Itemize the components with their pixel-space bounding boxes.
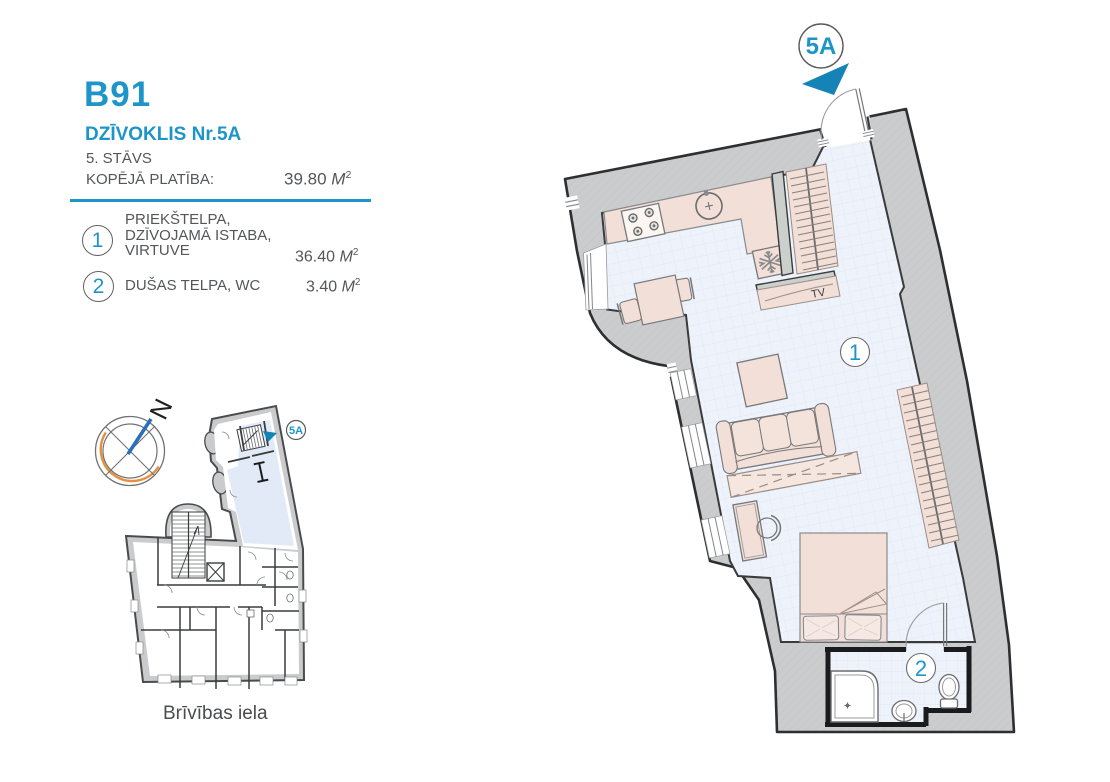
svg-text:1: 1	[849, 340, 861, 365]
svg-text:2: 2	[915, 656, 927, 681]
svg-text:5A: 5A	[806, 33, 837, 60]
svg-text:5A: 5A	[289, 425, 303, 437]
